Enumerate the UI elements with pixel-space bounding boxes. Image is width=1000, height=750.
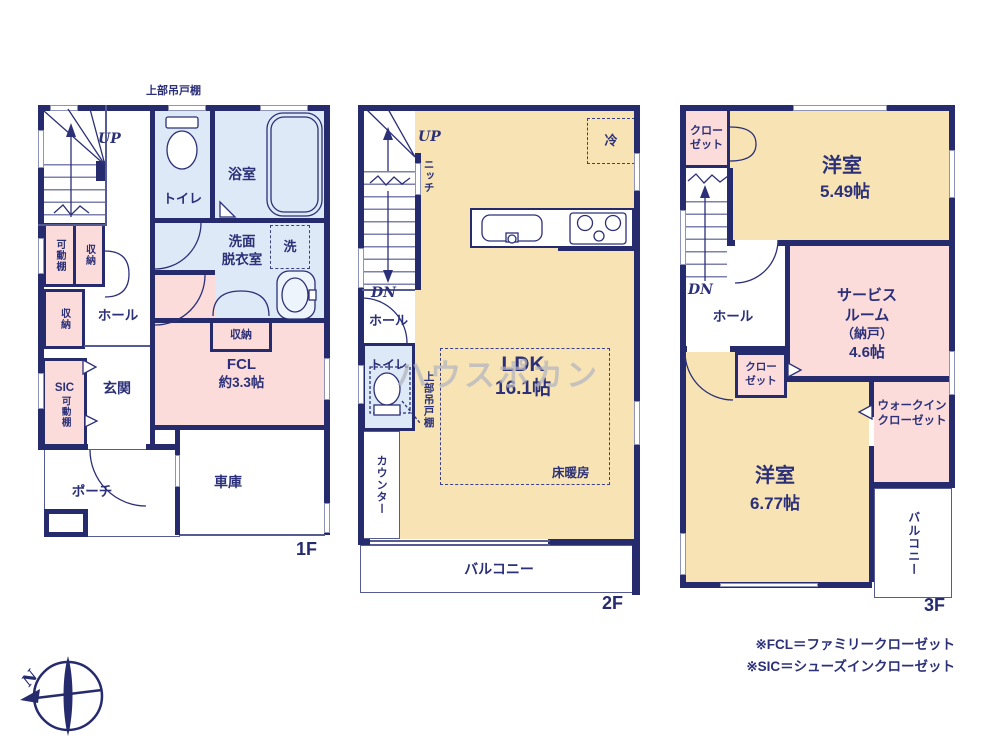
label-garage-1f: 車庫 <box>198 473 258 491</box>
note-sic: ※SIC＝シューズインクローゼット <box>610 656 955 678</box>
decor <box>688 174 728 183</box>
label-up-1f: UP <box>98 131 121 147</box>
label-niche-2f: ニッチ <box>421 159 435 194</box>
label-dn-3f: DN <box>688 282 713 298</box>
label-hall-1f: ホール <box>88 307 148 325</box>
note-upper-cupboard-1f: 上部吊戸棚 <box>146 84 201 98</box>
label-cupboard-2f: 上部吊戸棚 <box>421 371 435 429</box>
label-fcl-1f: FCL <box>184 355 299 375</box>
double-door-arc-closet <box>730 127 756 161</box>
decor <box>508 235 516 243</box>
label-bedroom2-3f: 洋室 <box>710 463 840 489</box>
compass-north-label: N <box>17 665 42 690</box>
label-porch-1f: ポーチ <box>62 483 122 501</box>
label-toilet-2f: トイレ <box>362 357 415 373</box>
label-service-3f: サービス ルーム <box>785 286 949 325</box>
double-door-arc-hall <box>105 251 129 297</box>
door-arc-bedroom1 <box>735 240 778 283</box>
label-hall-3f: ホール <box>693 308 773 326</box>
floor-plan-page: 上部吊戸棚 可動棚 収納 収納 SIC 可動棚 収納 <box>0 0 1000 750</box>
stair-winder-lines <box>366 109 415 157</box>
stair-arrow-head <box>700 185 710 198</box>
label-service-note-3f: （納戸） <box>785 326 949 343</box>
compass-needle-wing <box>64 656 73 736</box>
label-floor-heating-2f: 床暖房 <box>552 465 590 481</box>
floor-plan-2f: カウンター バルコニー 冷 <box>358 105 640 595</box>
label-up-2f: UP <box>418 129 441 145</box>
compass: N <box>12 648 116 748</box>
floor-plan-1f: 可動棚 収納 収納 SIC 可動棚 収納 <box>38 105 330 540</box>
decor <box>402 401 420 423</box>
decor <box>370 176 410 185</box>
door-triangle <box>83 360 96 374</box>
label-wic-3f: ウォークイン クローゼット <box>871 399 953 429</box>
label-hall-2f: ホール <box>362 313 415 330</box>
label-fcl-size-1f: 約3.3帖 <box>184 374 299 392</box>
decor <box>578 216 593 231</box>
label-service-size-3f: 4.6帖 <box>785 343 949 363</box>
label-bedroom1-3f: 洋室 <box>777 153 907 179</box>
floor-label-1f: 1F <box>296 539 317 560</box>
label-washroom-1f: 洗面 脱衣室 <box>192 233 292 268</box>
legend-notes: ※FCL＝ファミリークローゼット ※SIC＝シューズインクローゼット <box>610 634 955 679</box>
decor <box>309 290 316 300</box>
label-toilet-1f: トイレ <box>155 191 210 208</box>
label-dn-2f: DN <box>371 285 396 301</box>
fixtures-overlay-2f <box>358 105 640 595</box>
label-bedroom1-size-3f: 5.49帖 <box>780 181 910 203</box>
label-bedroom2-size-3f: 6.77帖 <box>710 493 840 515</box>
stair-arrow-head-down <box>383 270 393 283</box>
label-bath-1f: 浴室 <box>202 165 282 183</box>
toilet-bowl-icon <box>374 373 400 405</box>
fixtures-overlay-1f <box>38 105 330 540</box>
toilet-icon <box>166 117 198 128</box>
decor <box>594 231 604 241</box>
label-entrance-1f: 玄関 <box>87 379 147 397</box>
label-ldk-2f: LDK <box>473 351 573 378</box>
door-triangle-closet <box>788 363 801 377</box>
note-fcl: ※FCL＝ファミリークローゼット <box>610 634 955 656</box>
floor-label-2f: 2F <box>602 593 623 614</box>
compass-arrow-head <box>20 689 40 703</box>
toilet-icon <box>374 405 400 415</box>
double-door-arc <box>213 291 269 316</box>
door-triangle <box>85 415 97 427</box>
door-arc-fcl <box>155 275 205 325</box>
floor-plan-3f: クロー ゼット クロー ゼット バルコニー <box>680 105 955 608</box>
door-arc-bedroom2 <box>685 352 733 400</box>
stair-arrow-head <box>66 123 76 137</box>
door-triangle-bath <box>220 202 235 217</box>
label-ldk-size-2f: 16.1帖 <box>473 377 573 402</box>
decor <box>606 216 621 231</box>
floor-label-3f: 3F <box>924 595 945 616</box>
toilet-bowl-icon <box>167 131 197 169</box>
